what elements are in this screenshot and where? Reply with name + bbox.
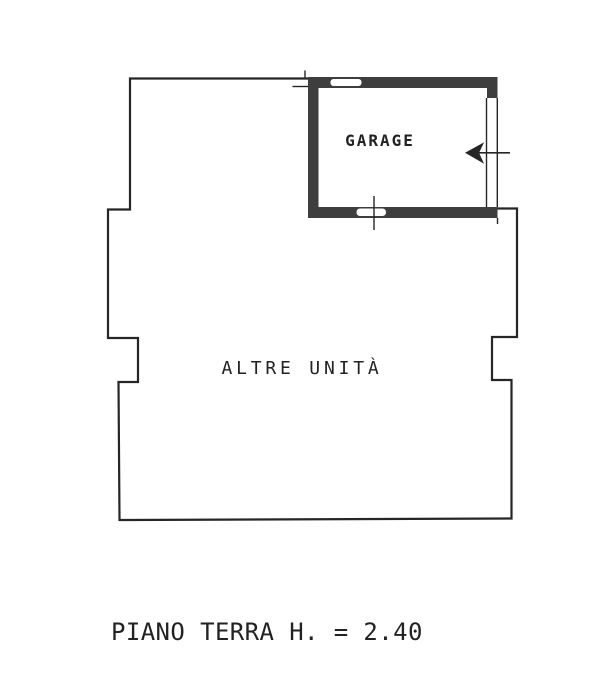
other-units-label: ALTRE UNITÀ: [221, 357, 382, 379]
garage-top-wall-opening: [331, 79, 362, 86]
garage-corner-pier: [487, 77, 498, 98]
garage-bottom-wall-opening: [357, 209, 387, 217]
garage-label: GARAGE: [345, 131, 415, 150]
entrance-arrow-icon: [466, 144, 510, 163]
garage-left-wall: [308, 77, 319, 218]
floorplan-drawing: GARAGE ALTRE UNITÀ PIANO TERRA H. = 2.40: [0, 0, 611, 677]
garage-bottom-wall: [308, 207, 498, 218]
floor-caption: PIANO TERRA H. = 2.40: [111, 618, 423, 646]
garage-door-jambs: [487, 98, 498, 224]
floorplan-page: GARAGE ALTRE UNITÀ PIANO TERRA H. = 2.40: [0, 0, 611, 677]
